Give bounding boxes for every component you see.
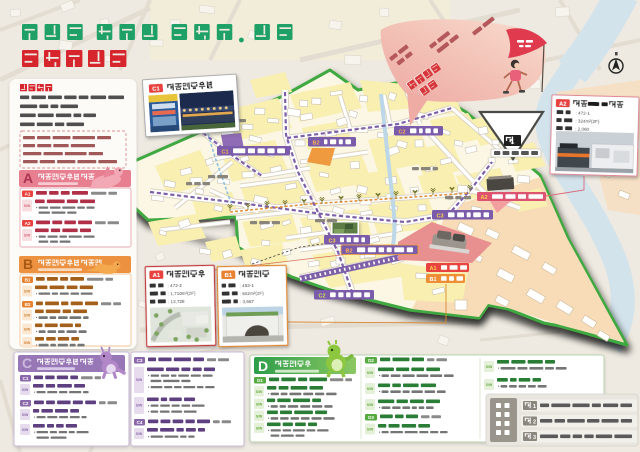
svg-text:B1: B1 bbox=[429, 277, 436, 283]
svg-text:S/W: S/W bbox=[486, 383, 493, 387]
svg-text:C2: C2 bbox=[398, 129, 405, 135]
svg-text:A1: A1 bbox=[25, 192, 31, 197]
svg-text:B1: B1 bbox=[25, 278, 31, 283]
svg-text:C2: C2 bbox=[23, 401, 29, 406]
svg-text:S/W: S/W bbox=[136, 378, 143, 382]
svg-text:D: D bbox=[258, 358, 268, 374]
svg-text:S/W: S/W bbox=[22, 388, 29, 392]
svg-text:A2: A2 bbox=[25, 221, 31, 226]
svg-text:S/W: S/W bbox=[367, 371, 374, 375]
svg-text:S/W: S/W bbox=[256, 402, 263, 406]
svg-text:C3: C3 bbox=[137, 358, 143, 363]
svg-text:A1: A1 bbox=[429, 266, 436, 272]
svg-text:S/W: S/W bbox=[24, 234, 31, 238]
svg-text:S/W: S/W bbox=[367, 403, 374, 407]
svg-text:S/W: S/W bbox=[24, 290, 31, 294]
svg-text:3: 3 bbox=[533, 435, 536, 441]
svg-text:C2: C2 bbox=[318, 293, 325, 299]
svg-text:B: B bbox=[23, 256, 33, 272]
svg-text:D3: D3 bbox=[368, 415, 374, 420]
svg-text:C1: C1 bbox=[221, 149, 228, 155]
svg-text:: 472-1: : 472-1 bbox=[576, 110, 591, 115]
svg-text:S/W: S/W bbox=[136, 432, 143, 436]
svg-text:B1: B1 bbox=[225, 273, 233, 279]
svg-text:C3: C3 bbox=[328, 238, 335, 244]
svg-text:C1: C1 bbox=[23, 376, 29, 381]
svg-text:C4: C4 bbox=[137, 420, 143, 425]
svg-text:S/W: S/W bbox=[22, 428, 29, 432]
svg-text:: 324m²(2F): : 324m²(2F) bbox=[575, 118, 600, 124]
svg-text:S/W: S/W bbox=[24, 314, 31, 318]
svg-text:S/W: S/W bbox=[367, 428, 374, 432]
svg-text:S/W: S/W bbox=[256, 414, 263, 418]
svg-text:S/W: S/W bbox=[24, 341, 31, 345]
svg-text:A1: A1 bbox=[153, 273, 161, 279]
svg-text:S/W: S/W bbox=[256, 426, 263, 430]
svg-text:C3: C3 bbox=[436, 213, 443, 219]
svg-text:A2: A2 bbox=[480, 195, 487, 201]
svg-text:B2: B2 bbox=[312, 140, 319, 146]
svg-text:2: 2 bbox=[533, 420, 536, 426]
svg-text:S/W: S/W bbox=[486, 365, 493, 369]
svg-text:: 3,667: : 3,667 bbox=[240, 299, 255, 304]
svg-text:: 662m²(2F): : 662m²(2F) bbox=[240, 291, 265, 297]
svg-text:C1: C1 bbox=[152, 86, 161, 92]
svg-text:S/W: S/W bbox=[136, 404, 143, 408]
svg-text:S/W: S/W bbox=[367, 387, 374, 391]
svg-text:C: C bbox=[22, 355, 32, 371]
svg-text:: 2,060: : 2,060 bbox=[575, 126, 590, 131]
svg-text:B2: B2 bbox=[25, 302, 31, 307]
svg-text:1: 1 bbox=[533, 404, 536, 410]
svg-text:: 472-2: : 472-2 bbox=[168, 283, 183, 288]
svg-text:: 1,710m²(2F): : 1,710m²(2F) bbox=[168, 291, 196, 297]
svg-text:: 13,728: : 13,728 bbox=[168, 299, 185, 304]
svg-text:D1: D1 bbox=[257, 378, 263, 383]
svg-text:S/W: S/W bbox=[256, 390, 263, 394]
svg-text:D2: D2 bbox=[368, 358, 374, 363]
svg-text:: 493-1: : 493-1 bbox=[240, 283, 255, 288]
svg-text:S/W: S/W bbox=[24, 204, 31, 208]
svg-text:A2: A2 bbox=[559, 101, 566, 107]
svg-text:A: A bbox=[23, 170, 33, 186]
svg-text:S/W: S/W bbox=[22, 413, 29, 417]
svg-text:S/W: S/W bbox=[24, 328, 31, 332]
svg-text:B2: B2 bbox=[345, 248, 352, 254]
